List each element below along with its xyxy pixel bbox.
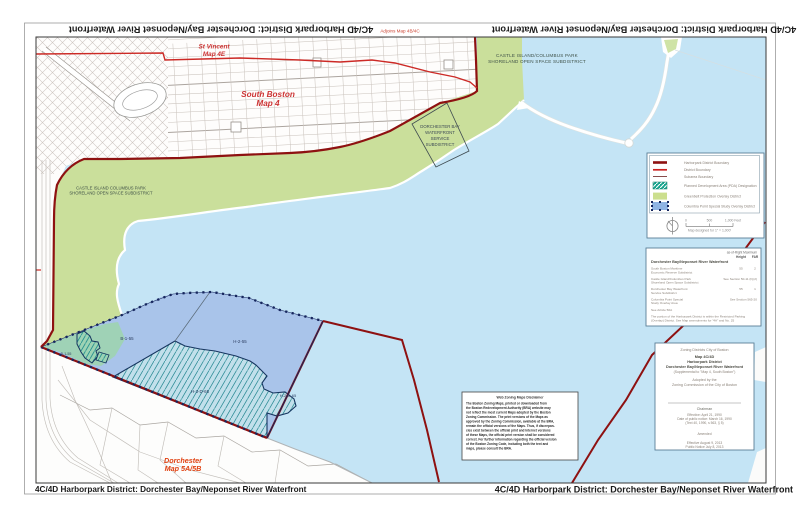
svg-text:Public Notice July 8, 2013: Public Notice July 8, 2013 [686, 445, 724, 449]
svg-text:Columbia Point Special Study O: Columbia Point Special Study Overlay Dis… [684, 205, 755, 209]
svg-text:Height: Height [736, 255, 747, 259]
svg-text:1: 1 [754, 287, 756, 291]
svg-text:Dorchester Bay/Neponset River: Dorchester Bay/Neponset River Waterfront [666, 365, 744, 369]
svg-text:55: 55 [739, 287, 743, 291]
svg-text:Adjoins Map 4B/4C: Adjoins Map 4B/4C [380, 29, 420, 34]
svg-text:SHORELAND OPEN SPACE SUBDISTRI: SHORELAND OPEN SPACE SUBDISTRICT [69, 191, 153, 196]
svg-text:Amended: Amended [697, 432, 711, 436]
svg-text:SHORELAND OPEN SPACE SUBDISTRI: SHORELAND OPEN SPACE SUBDISTRICT [488, 59, 586, 64]
svg-text:South Boston: South Boston [241, 90, 295, 99]
svg-text:Greenbelt Protection Overlay D: Greenbelt Protection Overlay District [684, 195, 741, 199]
svg-text:Economic Reserve Subdistrict: Economic Reserve Subdistrict [651, 270, 692, 274]
svg-text:B-1-55: B-1-55 [120, 336, 134, 341]
svg-text:500: 500 [707, 219, 713, 223]
svg-text:Map 4: Map 4 [256, 99, 280, 108]
svg-text:DORCHESTER BAY: DORCHESTER BAY [420, 124, 460, 129]
svg-text:See Section 565-20: See Section 565-20 [730, 297, 757, 301]
svg-text:Harborpark District: Harborpark District [687, 360, 722, 364]
svg-text:H-2-55: H-2-55 [233, 339, 247, 344]
svg-text:4C/4D Harborpark District: Dor: 4C/4D Harborpark District: Dorchester Ba… [69, 25, 373, 35]
svg-text:Dorchester Bay/Neponset River: Dorchester Bay/Neponset River Waterfront [651, 260, 729, 264]
svg-text:maps, please consult the BRA.: maps, please consult the BRA. [466, 447, 512, 451]
svg-text:cies exist between the officia: cies exist between the official print an… [466, 429, 551, 433]
svg-text:4C/4D Harborpark District: Dor: 4C/4D Harborpark District: Dorchester Ba… [495, 485, 793, 495]
svg-text:Chairman: Chairman [697, 407, 713, 411]
svg-text:CASTLE ISLAND/COLUMBUS PARK: CASTLE ISLAND/COLUMBUS PARK [496, 53, 579, 58]
svg-text:the Boston Redevelopment Autho: the Boston Redevelopment Authority (BRA)… [466, 406, 551, 410]
svg-text:Study Overlay Area: Study Overlay Area [651, 301, 678, 305]
svg-text:SUBDISTRICT: SUBDISTRICT [426, 142, 455, 147]
svg-text:Map designed for 1" = 1,000': Map designed for 1" = 1,000' [688, 229, 732, 233]
svg-text:Subarea Boundary: Subarea Boundary [684, 175, 713, 179]
svg-text:4C/4D Harborpark District: Dor: 4C/4D Harborpark District: Dorchester Ba… [492, 25, 796, 35]
svg-text:1,000 Feet: 1,000 Feet [725, 219, 741, 223]
svg-text:See Section 50-11 (h)(2): See Section 50-11 (h)(2) [723, 277, 757, 281]
svg-text:Zoning Districts City of Bosto: Zoning Districts City of Boston [680, 348, 728, 352]
svg-text:0: 0 [685, 219, 687, 223]
svg-text:District Boundary: District Boundary [684, 168, 711, 172]
svg-text:approved by the Zoning Commiss: approved by the Zoning Commission, avail… [466, 420, 554, 424]
svg-text:Map 4C/4D: Map 4C/4D [695, 355, 715, 359]
svg-text:(Overlay) District. See Map am: (Overlay) District. See Map amendments f… [651, 318, 734, 322]
svg-text:FAR: FAR [752, 255, 759, 259]
svg-text:H-3-D-65: H-3-D-65 [191, 389, 210, 394]
svg-text:Web Zoning Maps Disclaimer: Web Zoning Maps Disclaimer [496, 396, 544, 400]
svg-text:Zoning Commission. The print v: Zoning Commission. The print versions of… [466, 415, 548, 419]
svg-text:Service Subdistrict: Service Subdistrict [651, 291, 677, 295]
svg-text:correct. For further informati: correct. For further information regardi… [466, 438, 557, 442]
svg-text:2: 2 [754, 267, 756, 271]
svg-text:4C/4D Harborpark District: Dor: 4C/4D Harborpark District: Dorchester Ba… [35, 485, 307, 494]
svg-text:Map 4E: Map 4E [203, 51, 226, 58]
svg-text:St Vincent: St Vincent [198, 44, 230, 51]
svg-text:Shoreland Open Space Subdistri: Shoreland Open Space Subdistrict [651, 281, 699, 285]
svg-text:55: 55 [739, 267, 743, 271]
svg-text:See Article 50A: See Article 50A [651, 308, 673, 312]
svg-text:(Text 40, 1990, s 563, § 5): (Text 40, 1990, s 563, § 5) [685, 421, 723, 425]
svg-text:remain the official versions o: remain the official versions of the Maps… [466, 424, 555, 428]
svg-text:The Boston Zoning Maps, printe: The Boston Zoning Maps, printed or downl… [466, 402, 547, 406]
svg-text:WATERFRONT: WATERFRONT [425, 130, 455, 135]
svg-text:Zoning Commission of the City: Zoning Commission of the City of Boston [672, 383, 737, 387]
svg-text:B-1-55: B-1-55 [61, 352, 72, 356]
svg-text:of these Maps, the official pr: of these Maps, the official print versio… [466, 433, 555, 437]
svg-text:(Supplemental to "Map 4, South: (Supplemental to "Map 4, South Boston") [674, 370, 736, 374]
svg-text:of the Boston Zoning Code, inc: of the Boston Zoning Code, including bot… [466, 442, 548, 446]
svg-text:not reflect the most current M: not reflect the most current Maps adopte… [466, 411, 551, 415]
svg-text:Planned Development Area (PDA): Planned Development Area (PDA) Designati… [684, 184, 757, 188]
svg-text:SERVICE: SERVICE [431, 136, 450, 141]
svg-text:Map 5A/5B: Map 5A/5B [165, 464, 202, 473]
svg-text:Harborpark District Boundary: Harborpark District Boundary [684, 161, 729, 165]
svg-text:H-2-D-65: H-2-D-65 [280, 393, 297, 398]
svg-text:Adopted by the: Adopted by the [692, 378, 716, 382]
